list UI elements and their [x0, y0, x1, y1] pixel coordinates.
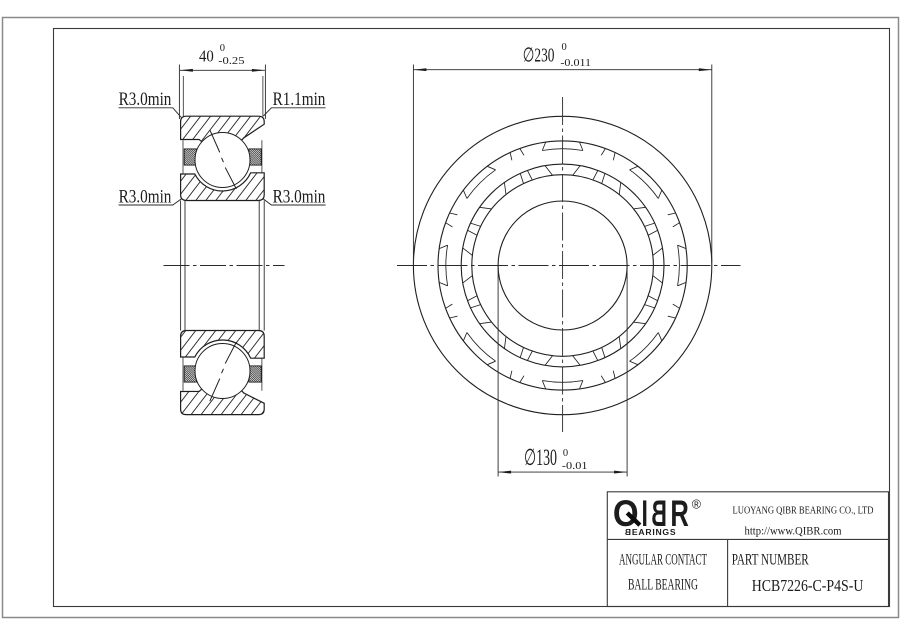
svg-text:0: 0	[563, 448, 568, 459]
svg-text:0: 0	[562, 42, 567, 53]
svg-text:BALL BEARING: BALL BEARING	[628, 577, 698, 594]
svg-text:HCB7226-C-P4S-U: HCB7226-C-P4S-U	[752, 576, 864, 595]
svg-text:-0.011: -0.011	[560, 58, 591, 69]
svg-text:R3.0min: R3.0min	[119, 186, 172, 207]
svg-text:ANGULAR CONTACT: ANGULAR CONTACT	[619, 552, 707, 569]
svg-text:-0.25: -0.25	[218, 56, 244, 67]
svg-text:∅230: ∅230	[523, 45, 555, 67]
svg-text:R1.1min: R1.1min	[273, 89, 326, 110]
svg-text:EARINGS: EARINGS	[632, 527, 676, 537]
svg-text:http://www.QIBR.com: http://www.QIBR.com	[745, 525, 842, 537]
svg-text:®: ®	[692, 498, 702, 512]
svg-text:LUOYANG QIBR BEARING CO., LTD: LUOYANG QIBR BEARING CO., LTD	[733, 504, 874, 516]
svg-text:∅130: ∅130	[524, 445, 557, 470]
svg-text:B: B	[625, 527, 631, 537]
svg-text:0: 0	[220, 43, 225, 54]
svg-text:PART NUMBER: PART NUMBER	[732, 552, 809, 569]
svg-text:R3.0min: R3.0min	[119, 89, 172, 110]
svg-text:-0.01: -0.01	[562, 461, 588, 472]
svg-text:R3.0min: R3.0min	[273, 186, 326, 207]
svg-text:40: 40	[199, 47, 214, 66]
